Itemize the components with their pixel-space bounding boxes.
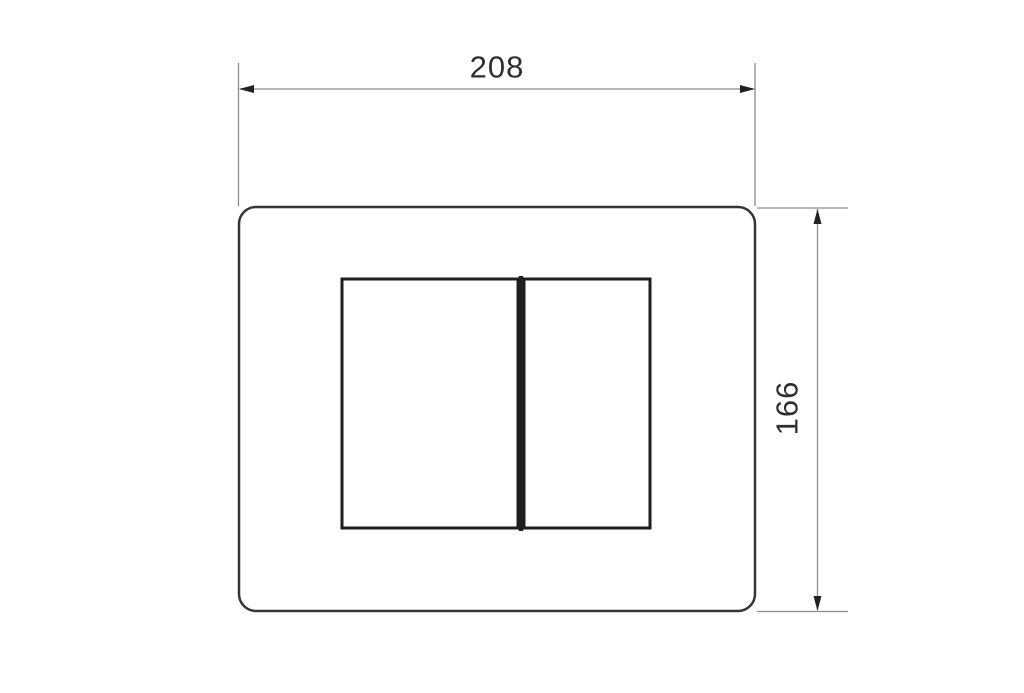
arrow-up-icon <box>814 209 822 224</box>
arrow-right-icon <box>740 85 755 93</box>
width-dimension-label: 208 <box>470 50 525 85</box>
technical-drawing-canvas: 208 166 <box>0 0 1024 693</box>
small-flush-button <box>524 279 650 528</box>
width-dimension: 208 <box>239 50 756 207</box>
flush-plate <box>239 207 755 611</box>
height-dimension: 166 <box>757 208 848 612</box>
plate-outline <box>239 207 755 611</box>
flush-plate-dimension-drawing: 208 166 <box>0 0 1024 693</box>
height-dimension-label: 166 <box>770 381 805 436</box>
arrow-down-icon <box>814 596 822 611</box>
large-flush-button <box>342 279 518 528</box>
arrow-left-icon <box>239 85 254 93</box>
